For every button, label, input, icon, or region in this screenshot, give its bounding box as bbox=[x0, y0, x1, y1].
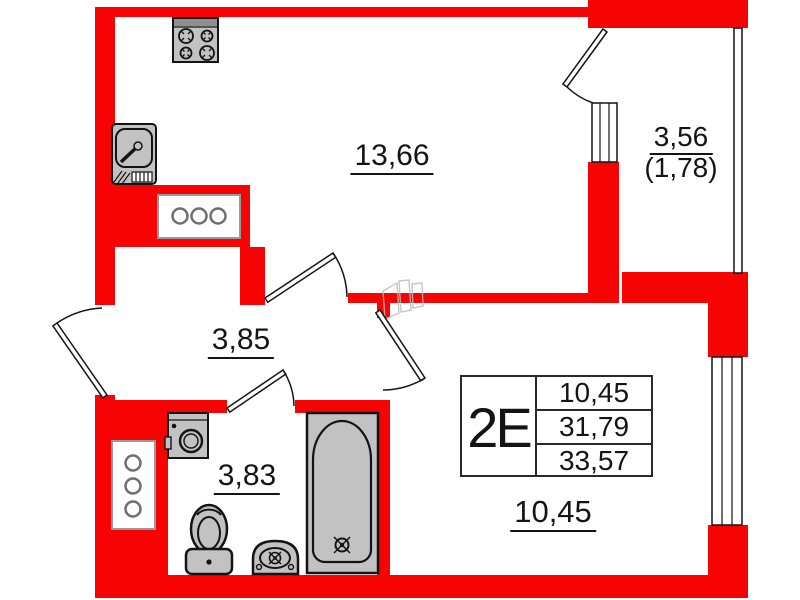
washing-machine-icon bbox=[165, 413, 208, 458]
unit-type-label: 2Е bbox=[462, 377, 537, 477]
unit-area-no-balcony: 31,79 bbox=[537, 411, 651, 445]
door-swing-icon bbox=[376, 310, 425, 390]
window-icon bbox=[712, 357, 742, 525]
toilet-icon bbox=[186, 505, 232, 574]
door-swing-icon bbox=[227, 370, 294, 412]
hallway-area-label: 3,85 bbox=[208, 324, 274, 356]
balcony-glazing-icon bbox=[734, 28, 742, 273]
window-icon bbox=[592, 103, 617, 162]
door-swing-icon bbox=[265, 253, 347, 302]
niche-outline-icon bbox=[383, 280, 423, 319]
bathtub-icon bbox=[307, 413, 378, 573]
unit-living-area: 10,45 bbox=[537, 377, 651, 411]
bathroom-area-label: 3,83 bbox=[214, 460, 280, 492]
balcony-area-label: 3,56 bbox=[650, 122, 713, 151]
bedroom-area-label: 10,45 bbox=[510, 496, 596, 529]
kitchen-sink-icon bbox=[112, 124, 156, 184]
plan-graphics bbox=[0, 0, 800, 600]
unit-info-table: 2Е 10,45 31,79 33,57 bbox=[460, 375, 653, 477]
unit-total-area: 33,57 bbox=[537, 445, 651, 477]
drain-icon bbox=[334, 537, 350, 553]
stove-icon bbox=[173, 18, 218, 62]
washbasin-icon bbox=[253, 541, 298, 574]
vent-shaft-icon bbox=[158, 195, 240, 238]
door-swing-icon bbox=[563, 29, 607, 103]
floor-plan: 13,66 3,56 (1,78) 3,85 3,83 10,45 2Е 10,… bbox=[0, 0, 800, 600]
door-swing-icon bbox=[53, 308, 107, 398]
balcony-reduced-area-label: (1,78) bbox=[644, 153, 717, 182]
kitchen-living-area-label: 13,66 bbox=[350, 140, 433, 172]
vent-shaft-icon bbox=[112, 441, 155, 529]
